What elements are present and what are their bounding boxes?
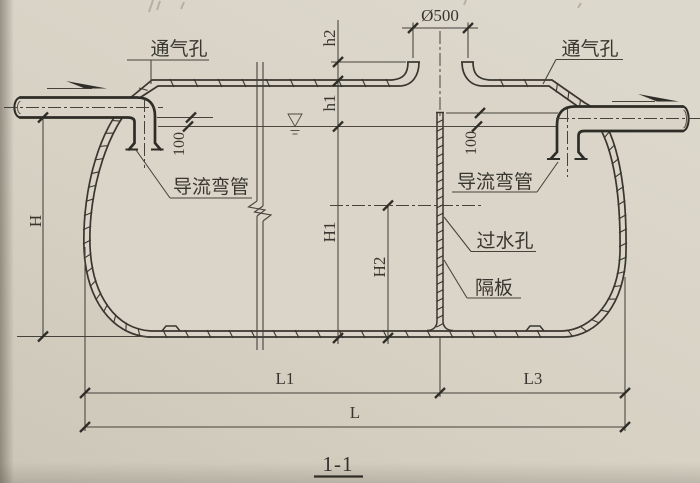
vent-left-label: 通气孔	[150, 38, 207, 60]
section-title: 1-1	[323, 452, 354, 476]
partition-label: 隔板	[475, 277, 513, 299]
tank-body	[83, 62, 627, 338]
manhole-diameter-label: Ø500	[421, 6, 459, 25]
water-hole-label: 过水孔	[476, 230, 533, 252]
dim-H: H	[26, 215, 45, 227]
guide-elbow-left-label: 导流弯管	[173, 176, 249, 198]
tank-fill	[84, 62, 626, 337]
drawing-page: 通气孔 通气孔 Ø500 导流弯管 导流弯管 过水孔 隔板 h2 h1 100 …	[0, 0, 700, 483]
guide-elbow-right-label: 导流弯管	[457, 171, 533, 193]
dim-L1: L1	[276, 369, 295, 388]
dim-100-left: 100	[171, 132, 188, 156]
dim-L: L	[350, 403, 360, 422]
dim-100-right: 100	[463, 131, 480, 155]
dim-H1: H1	[320, 222, 339, 243]
dim-h2: h2	[320, 30, 339, 47]
dim-h1: h1	[320, 95, 339, 112]
dim-H2: H2	[370, 257, 389, 278]
section-drawing: 通气孔 通气孔 Ø500 导流弯管 导流弯管 过水孔 隔板 h2 h1 100 …	[0, 0, 700, 483]
dim-L3: L3	[524, 369, 543, 388]
vent-right-label: 通气孔	[561, 38, 618, 60]
